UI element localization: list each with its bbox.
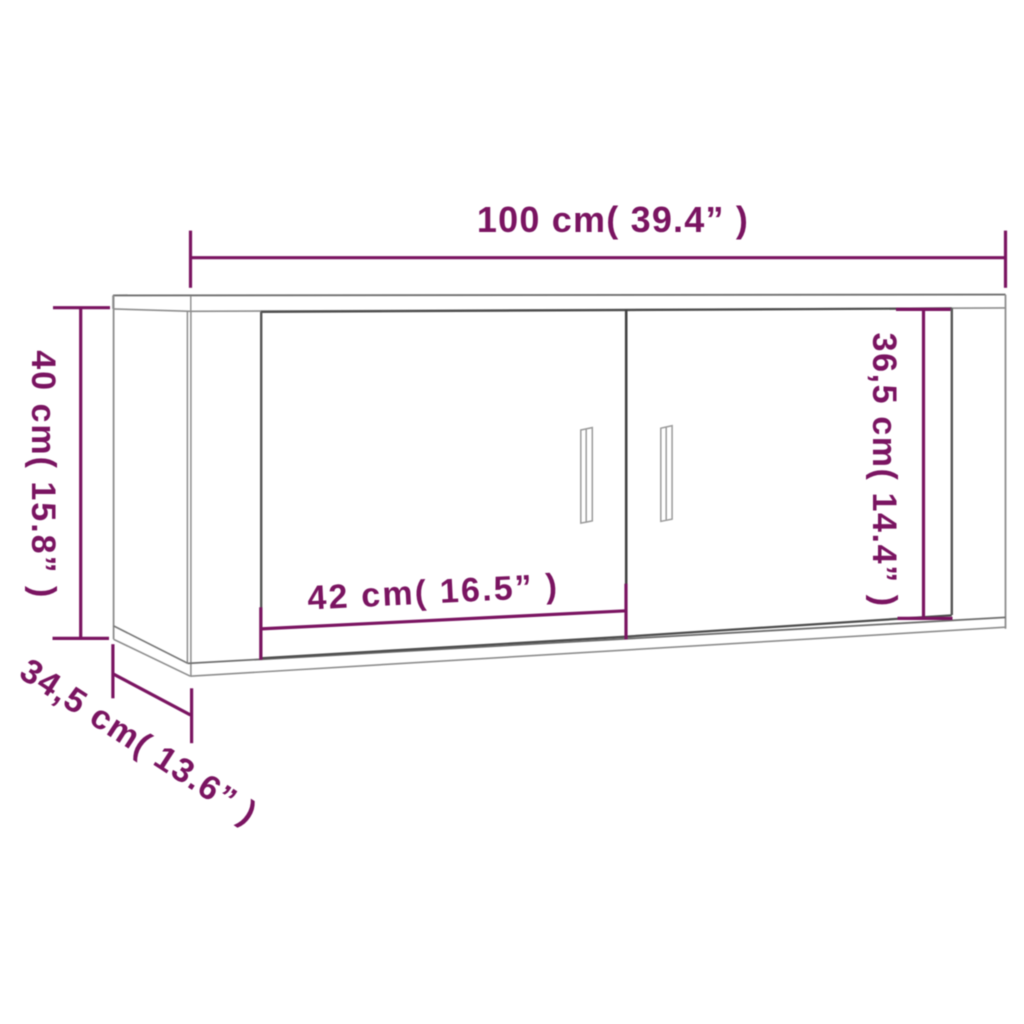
svg-text:100 cm( 39.4” ): 100 cm( 39.4” ) — [477, 199, 749, 240]
svg-text:40 cm( 15.8” ): 40 cm( 15.8” ) — [24, 350, 62, 599]
svg-text:36,5 cm( 14.4” ): 36,5 cm( 14.4” ) — [865, 333, 903, 608]
